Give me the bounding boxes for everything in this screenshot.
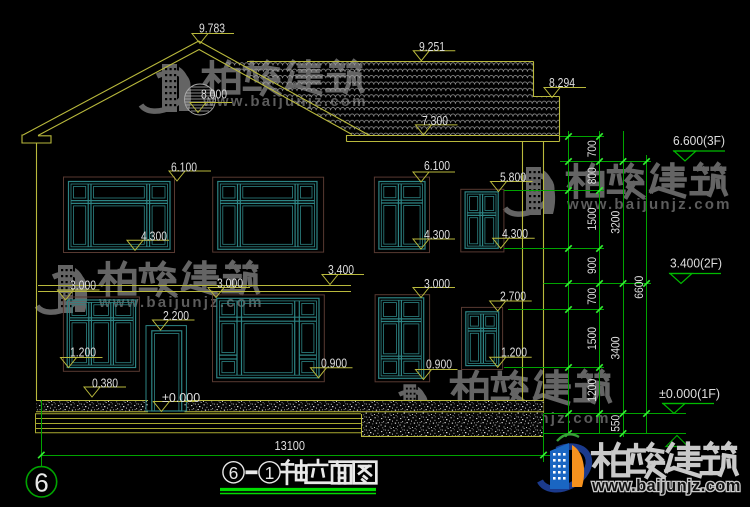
svg-text:6.100: 6.100 (424, 159, 450, 173)
svg-text:±0.000: ±0.000 (162, 391, 200, 405)
svg-text:1: 1 (265, 463, 275, 483)
svg-text:3.000: 3.000 (70, 279, 96, 293)
svg-text:6.100: 6.100 (171, 161, 197, 175)
svg-text:8.000: 8.000 (201, 88, 227, 102)
svg-text:9.783: 9.783 (199, 22, 225, 36)
svg-text:550: 550 (611, 415, 623, 432)
svg-text:4.300: 4.300 (424, 228, 450, 242)
svg-text:3.400: 3.400 (328, 263, 354, 277)
svg-text:±0.000(1F): ±0.000(1F) (659, 387, 720, 401)
svg-text:4.300: 4.300 (141, 230, 167, 244)
svg-text:1500: 1500 (587, 208, 599, 231)
svg-text:9.251: 9.251 (419, 40, 445, 54)
svg-text:1500: 1500 (587, 327, 599, 350)
svg-text:3.400(2F): 3.400(2F) (670, 257, 722, 271)
svg-text:5.800: 5.800 (500, 171, 526, 185)
svg-text:800: 800 (587, 167, 599, 184)
svg-text:6: 6 (34, 468, 48, 498)
svg-text:6600: 6600 (634, 276, 646, 299)
svg-text:3.000: 3.000 (424, 277, 450, 291)
svg-text:1.200: 1.200 (501, 346, 527, 360)
svg-text:1200: 1200 (587, 379, 599, 402)
svg-text:2.200: 2.200 (163, 309, 189, 323)
svg-text:0.900: 0.900 (426, 358, 452, 372)
svg-text:1.200: 1.200 (70, 346, 96, 360)
svg-text:13100: 13100 (275, 439, 306, 453)
svg-text:900: 900 (587, 257, 599, 274)
svg-text:0.900: 0.900 (321, 357, 347, 371)
svg-text:700: 700 (587, 288, 599, 305)
svg-text:3.000: 3.000 (217, 277, 243, 291)
svg-text:3400: 3400 (611, 337, 623, 360)
svg-text:4.300: 4.300 (502, 227, 528, 241)
svg-text:700: 700 (587, 140, 599, 157)
svg-text:6.600(3F): 6.600(3F) (673, 134, 725, 148)
svg-text:6: 6 (229, 463, 239, 483)
svg-text:2.700: 2.700 (500, 290, 526, 304)
svg-text:3200: 3200 (611, 211, 623, 234)
svg-text:0.380: 0.380 (92, 377, 118, 391)
svg-text:7.300: 7.300 (422, 114, 448, 128)
svg-text:8.294: 8.294 (549, 76, 575, 90)
svg-text:www.baijunjz.com: www.baijunjz.com (591, 477, 741, 495)
